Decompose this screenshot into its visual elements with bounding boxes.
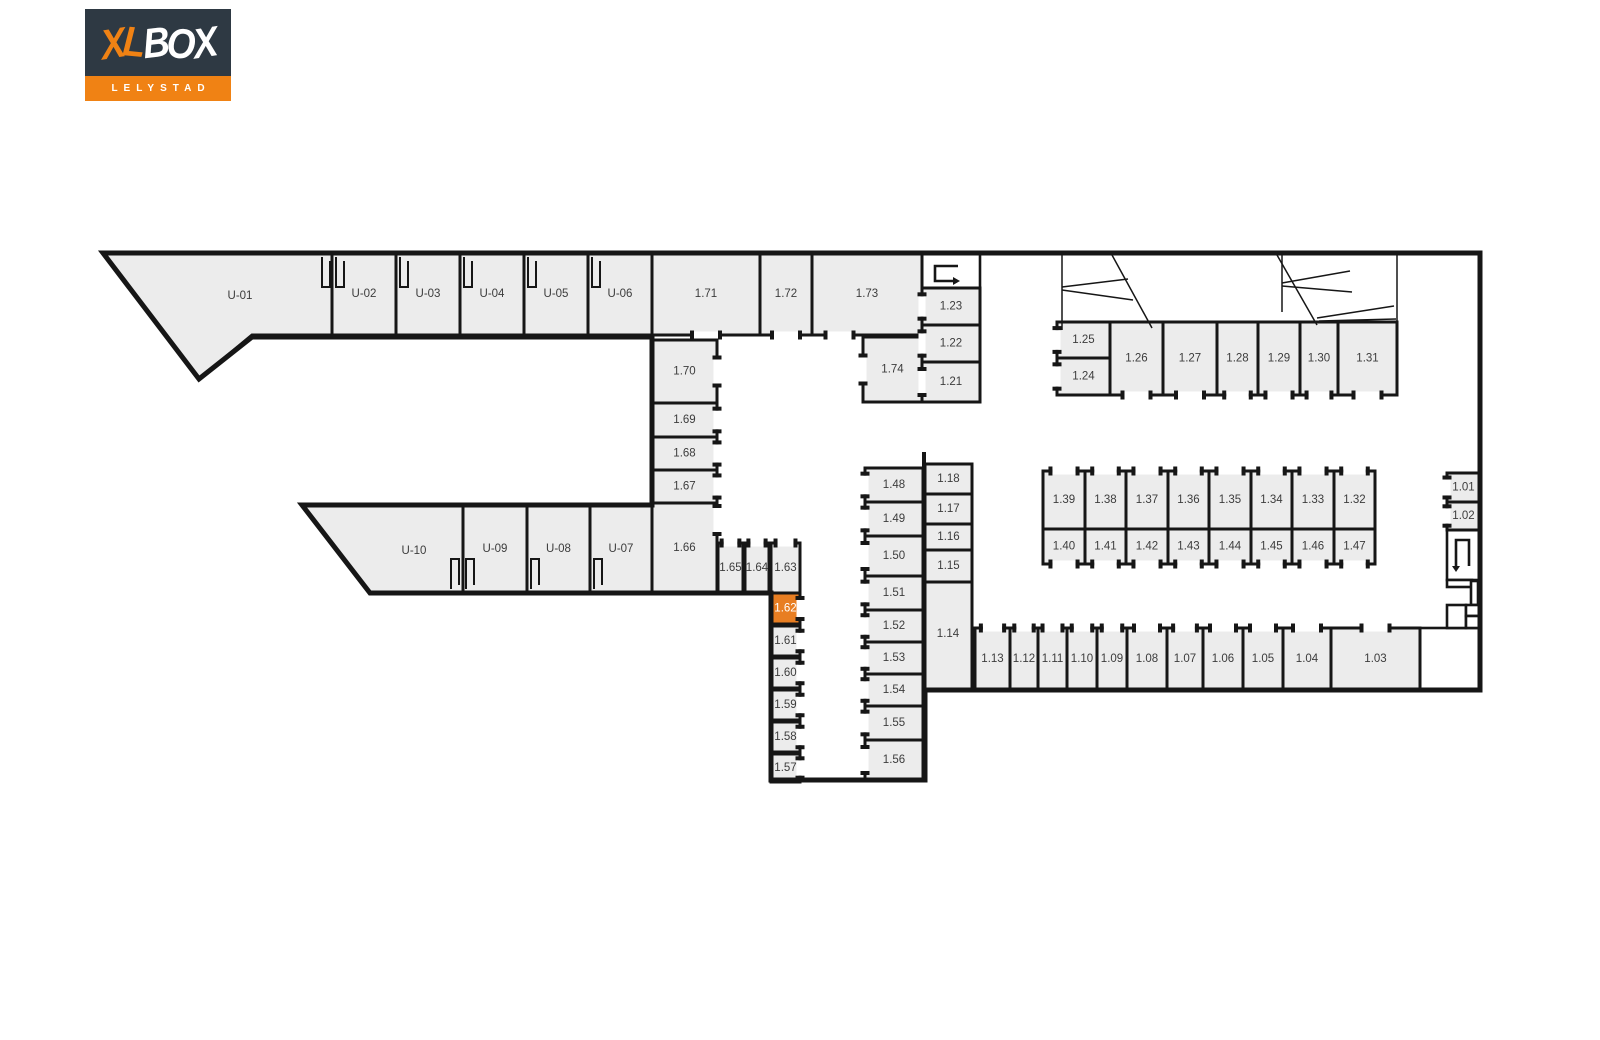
door-gap [1094, 468, 1117, 475]
door-jamb [918, 393, 927, 397]
door-gap [724, 540, 738, 547]
unit-label: 1.38 [1094, 494, 1116, 506]
door-jamb [796, 681, 805, 685]
door-gap [1135, 561, 1158, 568]
door-jamb [1117, 467, 1121, 476]
door-jamb [1070, 624, 1074, 633]
door-jamb [852, 331, 856, 340]
door-gap [1045, 625, 1061, 632]
door-jamb [1202, 391, 1206, 400]
door-jamb [1200, 560, 1204, 569]
door-gap [1177, 468, 1200, 475]
unit-label: 1.70 [673, 366, 695, 378]
door-gap [1444, 508, 1451, 523]
gate-symbol-line [1317, 306, 1394, 318]
unit-label: 1.53 [883, 652, 905, 664]
door-gap [1260, 468, 1283, 475]
unit-label: 1.06 [1212, 653, 1234, 665]
door-jamb [861, 472, 870, 476]
unit-label: 1.44 [1219, 541, 1242, 553]
door-jamb [1149, 391, 1153, 400]
door-gap [797, 760, 804, 775]
door-jamb [1242, 560, 1246, 569]
door-jamb [861, 699, 870, 703]
door-jamb [918, 317, 927, 321]
door-jamb [1263, 391, 1267, 400]
door-gap [1136, 625, 1158, 632]
door-gap [1104, 625, 1121, 632]
unit-label: 1.47 [1343, 541, 1365, 553]
door-jamb [713, 473, 722, 477]
door-jamb [1090, 467, 1094, 476]
door-jamb [1325, 467, 1329, 476]
unit-label: 1.69 [673, 414, 695, 426]
unit-label: 1.73 [856, 288, 878, 300]
door-jamb [713, 496, 722, 500]
door-jamb [861, 506, 870, 510]
unit-label: 1.40 [1053, 541, 1075, 553]
door-jamb [861, 635, 870, 639]
unit-label: 1.39 [1053, 494, 1075, 506]
door-jamb [1158, 624, 1162, 633]
door-gap [714, 411, 721, 430]
door-jamb [1090, 560, 1094, 569]
door-gap [797, 633, 804, 650]
unit-label: U-10 [402, 545, 427, 557]
door-jamb [796, 756, 805, 760]
unit-label: 1.37 [1136, 494, 1158, 506]
unit-U-01[interactable] [103, 253, 332, 379]
door-gap [797, 697, 804, 714]
door-jamb [1174, 391, 1178, 400]
floor-plan: U-01U-02U-03U-04U-05U-061.711.721.731.74… [0, 0, 1600, 1040]
door-jamb [796, 649, 805, 653]
door-gap [1364, 625, 1388, 632]
gate-symbol-line [1062, 290, 1133, 300]
unit-label: U-06 [608, 288, 633, 300]
door-jamb [746, 539, 750, 548]
door-gap [1267, 392, 1290, 399]
door-jamb [861, 567, 870, 571]
door-jamb [713, 407, 722, 411]
door-jamb [737, 539, 741, 548]
door-jamb [1443, 476, 1452, 480]
unit-label: 1.17 [937, 503, 959, 515]
door-jamb [861, 732, 870, 736]
brand-logo: XLBOX LELYSTAD [85, 9, 231, 101]
unit-label: 1.41 [1094, 541, 1116, 553]
logo-letter: B [141, 20, 169, 65]
door-jamb [774, 539, 778, 548]
door-jamb [720, 539, 724, 548]
door-jamb [1117, 560, 1121, 569]
unit-label: 1.56 [883, 754, 905, 766]
unit-label: 1.15 [937, 560, 959, 572]
door-jamb [796, 693, 805, 697]
door-gap [778, 540, 794, 547]
unit-label: 1.57 [774, 762, 796, 774]
door-gap [862, 749, 869, 771]
door-jamb [796, 725, 805, 729]
unit-label: 1.02 [1452, 510, 1474, 522]
door-jamb [1012, 624, 1016, 633]
unit-label: 1.08 [1136, 653, 1158, 665]
door-gap [1177, 561, 1200, 568]
unit-label: 1.58 [774, 731, 796, 743]
door-jamb [1366, 560, 1370, 569]
unit-label: 1.42 [1136, 541, 1158, 553]
unit-label: 1.30 [1308, 353, 1330, 365]
door-jamb [713, 504, 722, 508]
unit-label: U-03 [416, 288, 441, 300]
door-gap [797, 729, 804, 746]
unit-label: 1.09 [1101, 653, 1123, 665]
door-jamb [824, 331, 828, 340]
door-jamb [713, 463, 722, 467]
door-gap [828, 332, 852, 339]
unit-label: 1.18 [937, 473, 959, 485]
door-jamb [861, 602, 870, 606]
door-gap [1444, 480, 1451, 496]
door-jamb [979, 624, 983, 633]
gate-symbol-line [1112, 255, 1152, 328]
unit-label: 1.26 [1125, 353, 1147, 365]
logo-letter: X [191, 20, 218, 65]
door-jamb [861, 580, 870, 584]
door-jamb [859, 382, 868, 386]
unit-label: 1.64 [746, 562, 769, 574]
door-gap [714, 508, 721, 532]
door-jamb [1242, 467, 1246, 476]
logo-city: LELYSTAD [111, 83, 210, 94]
door-gap [1301, 468, 1324, 475]
door-gap [1343, 561, 1366, 568]
unit-label: 1.25 [1072, 334, 1094, 346]
door-jamb [1132, 624, 1136, 633]
unit-label: 1.07 [1174, 653, 1196, 665]
door-jamb [1171, 624, 1175, 633]
door-jamb [1319, 624, 1323, 633]
unit-label: 1.31 [1356, 353, 1378, 365]
door-jamb [1274, 624, 1278, 633]
unit-label: U-01 [228, 290, 253, 302]
door-gap [1218, 468, 1241, 475]
door-jamb [918, 329, 927, 333]
gate-symbol-line [1282, 286, 1352, 292]
door-gap [919, 296, 926, 316]
unit-label: 1.71 [695, 288, 717, 300]
unit-label: U-02 [352, 288, 377, 300]
door-jamb [918, 354, 927, 358]
unit-shape[interactable] [302, 505, 463, 593]
door-jamb [718, 331, 722, 340]
door-jamb [1291, 624, 1295, 633]
door-gap [1218, 561, 1241, 568]
door-jamb [1053, 362, 1062, 366]
door-jamb [1048, 467, 1052, 476]
door-jamb [713, 384, 722, 388]
door-gap [1301, 561, 1324, 568]
door-jamb [861, 528, 870, 532]
door-jamb [861, 667, 870, 671]
unit-label: 1.14 [937, 628, 960, 640]
door-gap [1054, 366, 1061, 386]
door-jamb [1297, 467, 1301, 476]
unit-label: 1.43 [1177, 541, 1199, 553]
utility-room [1447, 605, 1466, 628]
logo-wordmark: XLBOX [101, 22, 215, 64]
door-jamb [1195, 624, 1199, 633]
door-gap [694, 332, 718, 339]
door-jamb [1208, 624, 1212, 633]
door-gap [860, 358, 867, 382]
door-gap [1295, 625, 1319, 632]
door-gap [1252, 625, 1274, 632]
stairwell-top [922, 253, 980, 288]
door-jamb [1214, 560, 1218, 569]
unit-label: 1.63 [774, 562, 796, 574]
unit-label: 1.55 [883, 717, 905, 729]
unit-label: 1.04 [1296, 653, 1319, 665]
door-jamb [859, 354, 868, 358]
door-jamb [1131, 467, 1135, 476]
door-gap [797, 600, 804, 617]
unit-label: 1.48 [883, 479, 905, 491]
door-jamb [1131, 560, 1135, 569]
utility-room [1420, 628, 1480, 690]
door-gap [862, 584, 869, 603]
unit-U-10[interactable] [302, 505, 463, 593]
logo-xl: XL [101, 22, 143, 64]
door-gap [919, 371, 926, 393]
door-jamb [713, 429, 722, 433]
unit-label: 1.35 [1219, 494, 1241, 506]
unit-label: 1.24 [1072, 371, 1095, 383]
door-jamb [1200, 467, 1204, 476]
unit-label: 1.13 [981, 653, 1003, 665]
unit-label: 1.49 [883, 513, 905, 525]
unit-label: 1.27 [1179, 353, 1201, 365]
door-gap [1356, 392, 1380, 399]
door-gap [862, 617, 869, 635]
unit-label: 1.36 [1177, 494, 1199, 506]
unit-label: 1.60 [774, 667, 796, 679]
door-jamb [1249, 391, 1253, 400]
door-jamb [798, 331, 802, 340]
door-jamb [1159, 560, 1163, 569]
unit-label: 1.61 [774, 635, 796, 647]
unit-label: 1.28 [1226, 353, 1248, 365]
door-jamb [1366, 467, 1370, 476]
unit-label: 1.59 [774, 699, 796, 711]
door-gap [750, 540, 763, 547]
door-gap [1094, 561, 1117, 568]
door-gap [1212, 625, 1234, 632]
door-jamb [1060, 624, 1064, 633]
door-jamb [861, 645, 870, 649]
unit-label: 1.67 [673, 481, 695, 493]
unit-label: 1.11 [1042, 653, 1064, 665]
door-jamb [796, 661, 805, 665]
unit-shape[interactable] [103, 253, 332, 379]
door-jamb [1121, 391, 1125, 400]
door-jamb [796, 713, 805, 717]
utility-room [1447, 580, 1472, 587]
door-gap [1178, 392, 1202, 399]
door-jamb [861, 771, 870, 775]
door-jamb [1283, 467, 1287, 476]
door-jamb [918, 292, 927, 296]
door-jamb [1256, 560, 1260, 569]
door-jamb [770, 331, 774, 340]
door-jamb [1443, 495, 1452, 499]
door-jamb [918, 367, 927, 371]
unit-label: 1.12 [1013, 653, 1035, 665]
door-gap [1125, 392, 1149, 399]
door-gap [714, 360, 721, 384]
utility-room [1471, 581, 1478, 605]
door-gap [774, 332, 798, 339]
unit-label: U-07 [609, 543, 634, 555]
door-gap [1226, 392, 1249, 399]
unit-label: 1.62 [774, 603, 796, 615]
door-gap [1074, 625, 1091, 632]
door-gap [714, 444, 721, 462]
gate-symbol-line [1277, 255, 1317, 325]
door-gap [1343, 468, 1366, 475]
door-jamb [1053, 326, 1062, 330]
door-jamb [796, 617, 805, 621]
door-jamb [1360, 624, 1364, 633]
logo-box: BOX [143, 22, 215, 64]
unit-label: 1.65 [719, 562, 741, 574]
door-jamb [1222, 391, 1226, 400]
unit-label: 1.68 [673, 448, 695, 460]
door-jamb [861, 710, 870, 714]
logo-city-bar: LELYSTAD [85, 76, 231, 101]
door-jamb [690, 331, 694, 340]
unit-label: U-04 [480, 288, 506, 300]
door-jamb [796, 629, 805, 633]
door-gap [919, 333, 926, 353]
door-gap [862, 714, 869, 733]
unit-label: 1.05 [1252, 653, 1274, 665]
unit-label: 1.32 [1343, 494, 1365, 506]
unit-label: 1.52 [883, 620, 905, 632]
door-jamb [1002, 624, 1006, 633]
door-jamb [861, 541, 870, 545]
door-jamb [1339, 467, 1343, 476]
unit-label: 1.33 [1302, 494, 1324, 506]
door-jamb [796, 776, 805, 780]
door-jamb [861, 494, 870, 498]
door-jamb [1159, 467, 1163, 476]
door-jamb [1380, 391, 1384, 400]
door-gap [714, 477, 721, 495]
gate-symbol-line [1062, 279, 1128, 287]
unit-label: 1.50 [883, 550, 905, 562]
door-jamb [1173, 560, 1177, 569]
unit-label: 1.29 [1268, 353, 1290, 365]
door-jamb [1388, 624, 1392, 633]
door-jamb [1090, 624, 1094, 633]
door-gap [1135, 468, 1158, 475]
unit-label: 1.01 [1452, 482, 1474, 494]
door-jamb [1305, 391, 1309, 400]
unit-label: 1.72 [775, 288, 797, 300]
door-jamb [713, 532, 722, 536]
door-gap [1016, 625, 1031, 632]
unit-label: 1.45 [1260, 541, 1282, 553]
door-jamb [1291, 391, 1295, 400]
door-jamb [793, 539, 797, 548]
unit-label: 1.10 [1071, 653, 1093, 665]
unit-label: U-09 [483, 543, 508, 555]
door-jamb [1256, 467, 1260, 476]
door-gap [862, 510, 869, 529]
door-gap [797, 665, 804, 682]
door-jamb [1076, 467, 1080, 476]
door-jamb [796, 596, 805, 600]
door-jamb [713, 440, 722, 444]
door-gap [1260, 561, 1283, 568]
door-jamb [861, 613, 870, 617]
door-jamb [1325, 560, 1329, 569]
door-jamb [861, 677, 870, 681]
door-jamb [1443, 524, 1452, 528]
door-jamb [1214, 467, 1218, 476]
unit-label: 1.51 [883, 587, 905, 599]
unit-label: 1.66 [673, 542, 695, 554]
unit-label: 1.23 [940, 301, 962, 313]
door-gap [862, 681, 869, 699]
door-jamb [1053, 350, 1062, 354]
door-jamb [1234, 624, 1238, 633]
floorplan-page: XLBOX LELYSTAD U-01U-02U-03U-04U-05U-061… [0, 0, 1600, 1040]
door-jamb [713, 356, 722, 360]
door-jamb [1329, 391, 1333, 400]
door-gap [862, 545, 869, 567]
door-jamb [1100, 624, 1104, 633]
door-jamb [1053, 387, 1062, 391]
logo-box-panel: XLBOX [85, 9, 231, 76]
door-gap [862, 649, 869, 667]
unit-label: 1.34 [1260, 494, 1283, 506]
unit-label: 1.03 [1364, 653, 1386, 665]
unit-label: 1.16 [937, 531, 959, 543]
door-gap [983, 625, 1002, 632]
door-jamb [1041, 624, 1045, 633]
door-jamb [1048, 560, 1052, 569]
door-jamb [861, 745, 870, 749]
door-jamb [1443, 504, 1452, 508]
door-jamb [1032, 624, 1036, 633]
unit-label: 1.74 [881, 364, 904, 376]
door-jamb [1352, 391, 1356, 400]
unit-label: U-08 [546, 543, 571, 555]
stairwell-right [1447, 530, 1480, 580]
door-gap [1052, 468, 1075, 475]
logo-letter: O [166, 22, 195, 66]
door-gap [1175, 625, 1195, 632]
door-jamb [1339, 560, 1343, 569]
unit-label: 1.54 [883, 684, 906, 696]
unit-label: 1.21 [940, 376, 962, 388]
door-gap [1309, 392, 1330, 399]
door-jamb [796, 745, 805, 749]
door-gap [1054, 330, 1061, 350]
door-jamb [1283, 560, 1287, 569]
